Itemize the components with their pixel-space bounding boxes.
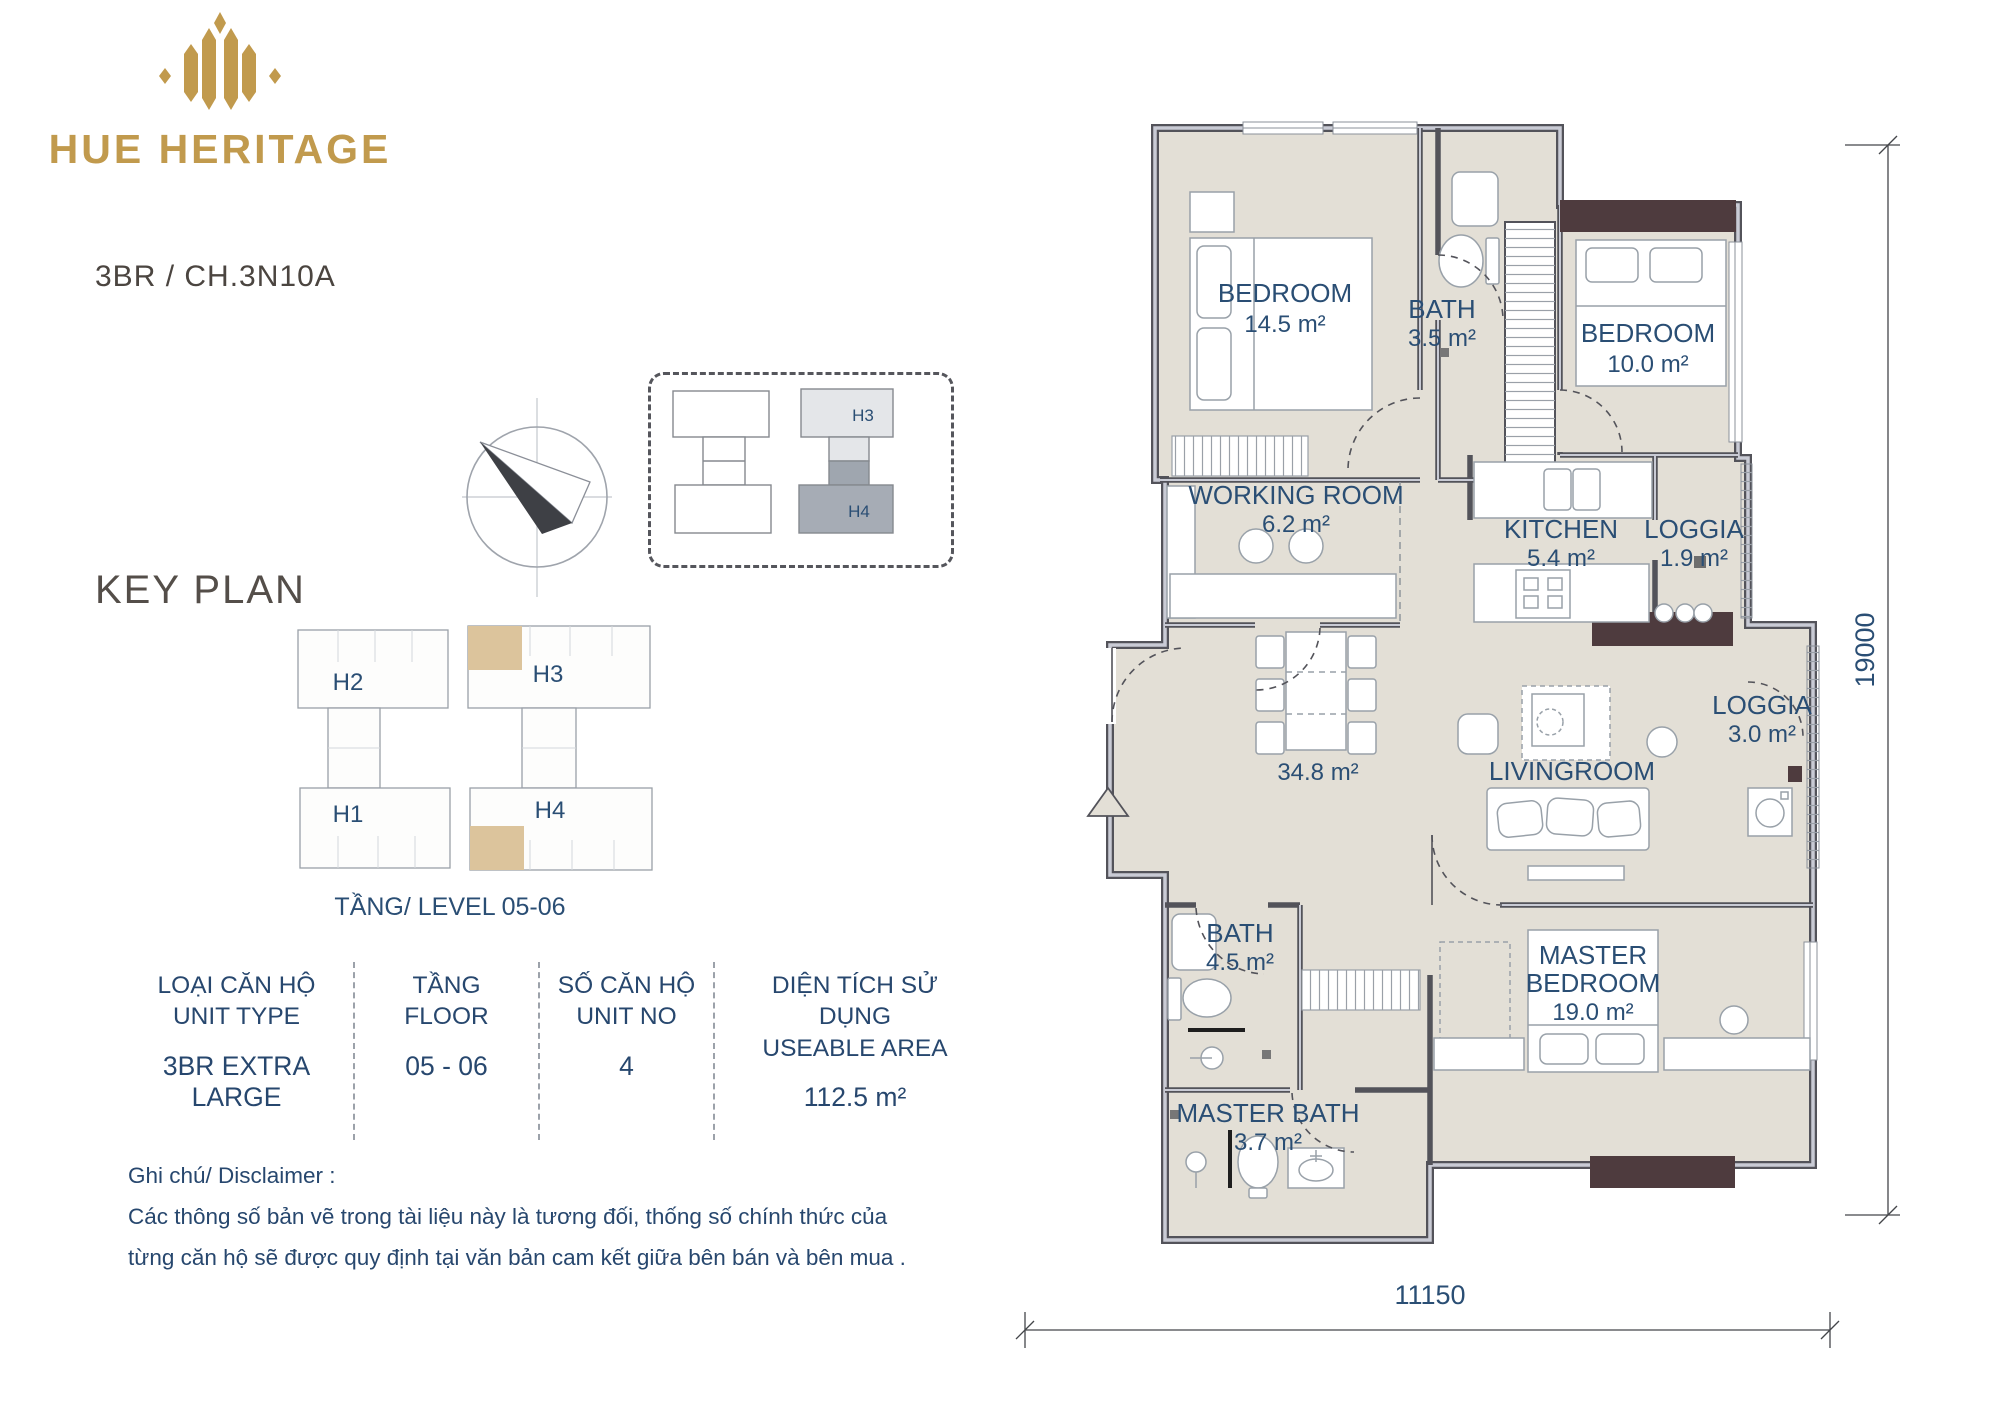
stair-core [1505,222,1555,478]
room-area-dining: 34.8 m² [1277,759,1358,786]
col-label-en: USEABLE AREA [760,1033,950,1064]
col-label-vi: SỐ CĂN HỘ [540,970,713,1001]
highlighted-unit-h3 [468,626,522,670]
unit-no-value: 4 [540,1051,713,1082]
dimension-height: 19000 [1850,612,1880,687]
brand-name: HUE HERITAGE [40,126,400,173]
brochure-page: HUE HERITAGE 3BR / CH.3N10A H3 H4 [0,0,2000,1414]
unit-type-value: 3BR EXTRA LARGE [120,1051,353,1113]
loggia2-rail [1807,646,1819,868]
unit-info-table: LOẠI CĂN HỘ UNIT TYPE 3BR EXTRA LARGE TẦ… [120,962,1000,1140]
closet-bedroom1 [1172,436,1308,476]
disclaimer: Ghi chú/ Disclaimer : Các thông số bản v… [128,1156,928,1279]
col-label-en: UNIT TYPE [120,1001,353,1032]
col-label-en: FLOOR [355,1001,538,1032]
room-label-bath2: BATH [1206,918,1273,948]
floor-value: 05 - 06 [355,1051,538,1082]
dimension-width: 11150 [1394,1280,1465,1310]
room-area-working: 6.2 m² [1262,511,1330,538]
site-block-h4-label: H4 [848,502,870,521]
disclaimer-line1: Các thông số bản vẽ trong tài liệu này l… [128,1197,928,1238]
room-area-bath2: 4.5 m² [1206,949,1274,976]
site-mini-plan: H3 H4 [648,372,954,568]
room-area-loggia2: 3.0 m² [1728,721,1796,748]
disclaimer-title: Ghi chú/ Disclaimer : [128,1156,928,1197]
room-label-working: WORKING ROOM [1188,480,1403,510]
room-area-masterbath: 3.7 m² [1234,1129,1302,1156]
room-label-kitchen: KITCHEN [1504,514,1618,544]
compass-icon [462,390,612,605]
col-label-vi: LOẠI CĂN HỘ [120,970,353,1001]
col-label-vi: DIỆN TÍCH SỬ DỤNG [760,970,950,1033]
room-area-bedroom2: 10.0 m² [1607,351,1688,378]
room-area-bath1: 3.5 m² [1408,325,1476,352]
room-area-bedroom1: 14.5 m² [1244,311,1325,338]
brand-block: HUE HERITAGE [40,10,400,173]
room-area-loggia1: 1.9 m² [1660,545,1728,572]
floor-plan: 19000 11150 BEDROOM 14.5 m² BATH 3.5 m² … [1000,90,1900,1360]
room-label-bath1: BATH [1408,294,1475,324]
keyplan-h2-label: H2 [333,669,364,696]
col-label-vi: TẦNG [355,970,538,1001]
room-area-kitchen: 5.4 m² [1527,545,1595,572]
room-label-bedroom1: BEDROOM [1218,278,1352,308]
keyplan-h3-label: H3 [533,661,564,688]
room-label-living: LIVINGROOM [1489,756,1655,786]
level-caption: TẦNG/ LEVEL 05-06 [270,893,630,922]
keyplan-h4-label: H4 [535,797,566,824]
room-label-loggia2: LOGGIA [1712,690,1812,720]
highlighted-unit-h4 [470,826,524,870]
table-col-unit-no: SỐ CĂN HỘ UNIT NO 4 [540,962,715,1140]
closet-corridor [1302,970,1420,1010]
room-label-loggia1: LOGGIA [1644,514,1744,544]
table-col-useable-area: DIỆN TÍCH SỬ DỤNG USEABLE AREA 112.5 m² [715,962,995,1140]
keyplan-h1-label: H1 [333,801,364,828]
key-plan-title: KEY PLAN [95,568,306,613]
logo-emblem-icon [125,10,315,122]
table-col-floor: TẦNG FLOOR 05 - 06 [355,962,540,1140]
room-label-bedroom2: BEDROOM [1581,318,1715,348]
unit-code: 3BR / CH.3N10A [95,260,336,294]
room-label-master-1: MASTER [1539,940,1647,970]
site-block-h3-label: H3 [852,406,874,425]
key-plan-map: H2 H1 H3 H4 [230,612,750,902]
room-area-master: 19.0 m² [1552,999,1633,1026]
room-label-master-2: BEDROOM [1526,968,1660,998]
col-label-en: UNIT NO [540,1001,713,1032]
room-label-masterbath: MASTER BATH [1177,1098,1360,1128]
useable-area-value: 112.5 m² [715,1082,995,1113]
table-col-unit-type: LOẠI CĂN HỘ UNIT TYPE 3BR EXTRA LARGE [120,962,355,1140]
disclaimer-line2: từng căn hộ sẽ được quy định tại văn bản… [128,1238,928,1279]
